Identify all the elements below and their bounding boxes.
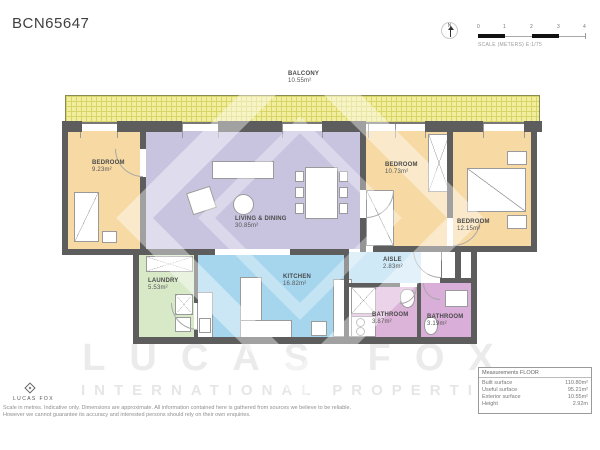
label-bedroom-left: BEDROOM 9.23m² [92, 160, 125, 174]
window-mullion [182, 124, 183, 138]
measurement-row: Exterior surface 10.55m² [482, 394, 588, 401]
label-bathroom-2: BATHROOM 3.19m² [427, 314, 463, 328]
room-name: KITCHEN [283, 274, 311, 280]
floor-plan-page: BCN65647 N 0 1 2 3 4 SCALE (METERS) E:1/… [0, 0, 600, 450]
dining-chair [339, 171, 348, 182]
wall-between-bedrooms [447, 121, 453, 218]
scale-segment-light [559, 36, 585, 37]
wall-bedroom-left-lower [140, 177, 146, 255]
wall-living-bedroom-lower [360, 218, 366, 252]
wall-living-bedroom-upper [360, 121, 366, 190]
wall-right-outer [531, 121, 537, 252]
measurements-box: Measurements FLOOR Built surface 110.80m… [478, 367, 592, 414]
label-laundry: LAUNDRY 5.53m² [148, 278, 179, 292]
sofa [212, 161, 274, 179]
wall-living-bottom-right [290, 249, 349, 255]
wall-left-outer [62, 121, 68, 255]
room-area: 12.15m² [457, 226, 490, 233]
nightstand [102, 231, 117, 243]
kitchen-counter-bottom [240, 320, 292, 338]
measurements-header: Measurements FLOOR [479, 368, 591, 378]
scale-tick-4: 4 [583, 24, 586, 30]
dining-chair [295, 203, 304, 214]
measurement-label: Height [482, 401, 498, 408]
entry-door-leaf [441, 250, 442, 278]
kitchen-island [240, 277, 262, 325]
north-compass-icon: N [441, 22, 458, 39]
wall-living-bottom-left [146, 249, 215, 255]
wall-laundry-kitchen-lower [194, 330, 198, 337]
room-area: 2.83m² [383, 264, 403, 271]
bathroom-sink [445, 290, 468, 307]
scale-bar: 0 1 2 3 4 SCALE (METERS) E:1/75 [478, 24, 588, 50]
room-name: AISLE [383, 257, 402, 263]
room-name: BALCONY [288, 71, 319, 77]
disclaimer-line-1: Scale in metres. Indicative only. Dimens… [3, 405, 403, 412]
room-name: BATHROOM [427, 314, 463, 320]
coffee-table [233, 194, 254, 215]
dining-chair [295, 187, 304, 198]
wall-pillar [117, 121, 182, 132]
room-name: LIVING & DINING [235, 216, 287, 222]
wall-bedroom-left-upper [140, 121, 146, 149]
room-area: 30.85m² [235, 223, 287, 230]
scale-tick-2: 2 [530, 24, 533, 30]
dining-chair [339, 187, 348, 198]
bed-single [74, 192, 99, 242]
kitchen-sink [199, 318, 211, 333]
measurement-row: Built surface 110.80m² [482, 380, 588, 387]
disclaimer-line-2: However we cannot guarantee its accuracy… [3, 412, 403, 419]
scale-segment-dark [478, 34, 505, 38]
sink-basin [356, 318, 365, 327]
wall-pillar [322, 121, 363, 132]
room-area: 10.73m² [385, 169, 418, 176]
dining-table [305, 167, 338, 219]
room-area: 9.23m² [92, 167, 125, 174]
wall-vestibule-left [455, 246, 461, 280]
room-name: LAUNDRY [148, 278, 179, 284]
room-name: BATHROOM [372, 312, 408, 318]
wall-laundry-kitchen-upper [194, 255, 198, 303]
shower [351, 287, 376, 314]
measurement-label: Built surface [482, 380, 512, 387]
label-bedroom-right: BEDROOM 12.15m² [457, 219, 490, 233]
scale-tick-0: 0 [477, 24, 480, 30]
page-title: BCN65647 [12, 15, 89, 32]
label-bathroom-1: BATHROOM 3.87m² [372, 312, 408, 326]
room-area: 16.82m² [283, 281, 311, 288]
measurement-label: Exterior surface [482, 394, 521, 401]
measurement-value: 110.80m² [565, 380, 588, 387]
north-arrow-stem [450, 28, 451, 37]
room-name: BEDROOM [457, 219, 490, 225]
wall-laundry-left [133, 249, 139, 344]
laundry-closet [146, 256, 193, 272]
measurement-value: 2.92m [573, 401, 588, 408]
sink-basin [356, 327, 365, 336]
measurement-row: Height 2.92m [482, 401, 588, 408]
room-name: BEDROOM [385, 162, 418, 168]
dining-chair [339, 203, 348, 214]
scale-tick-1: 1 [503, 24, 506, 30]
bed-double [467, 168, 526, 212]
window-mullion [395, 124, 396, 138]
measurement-value: 95.21m² [568, 387, 588, 394]
room-area: 3.19m² [427, 321, 463, 328]
room-name: BEDROOM [92, 160, 125, 166]
wall-bathroom2-right [471, 252, 477, 344]
fridge [333, 279, 352, 337]
wall-kitchen-aisle [344, 252, 349, 337]
room-area: 10.55m² [288, 78, 319, 85]
wall-bottom-outer [133, 337, 477, 344]
label-living-dining: LIVING & DINING 30.85m² [235, 216, 287, 230]
label-balcony: BALCONY 10.55m² [288, 71, 319, 85]
wall-pillar [425, 121, 483, 132]
measurements-rows: Built surface 110.80m² Useful surface 95… [479, 378, 591, 410]
nightstand [507, 151, 527, 165]
measurement-label: Useful surface [482, 387, 517, 394]
wall-bathroom-divider [417, 283, 421, 337]
measurement-value: 10.55m² [568, 394, 588, 401]
window-mullion [282, 124, 283, 138]
dining-chair [295, 171, 304, 182]
label-bedroom-middle: BEDROOM 10.73m² [385, 162, 418, 176]
room-area: 3.87m² [372, 319, 408, 326]
window-mullion [368, 124, 369, 138]
label-kitchen: KITCHEN 16.82m² [283, 274, 311, 288]
wall-aisle-bathroom [349, 283, 400, 287]
lucasfox-logo-text: LUCAS FOX [13, 396, 54, 402]
room-area: 5.53m² [148, 285, 179, 292]
scale-tick-3: 3 [557, 24, 560, 30]
scale-segment-dark [532, 34, 559, 38]
scale-segment-light [505, 36, 532, 37]
scale-caption: SCALE (METERS) E:1/75 [478, 42, 542, 48]
nightstand [507, 215, 527, 229]
room-balcony [65, 95, 540, 123]
window-mullion [483, 124, 484, 138]
label-aisle: AISLE 2.83m² [383, 257, 403, 271]
measurement-row: Useful surface 95.21m² [482, 387, 588, 394]
scale-end-tick [585, 33, 586, 39]
wall-pillar [218, 121, 282, 132]
disclaimer: Scale in metres. Indicative only. Dimens… [3, 405, 403, 418]
stove [311, 321, 327, 336]
